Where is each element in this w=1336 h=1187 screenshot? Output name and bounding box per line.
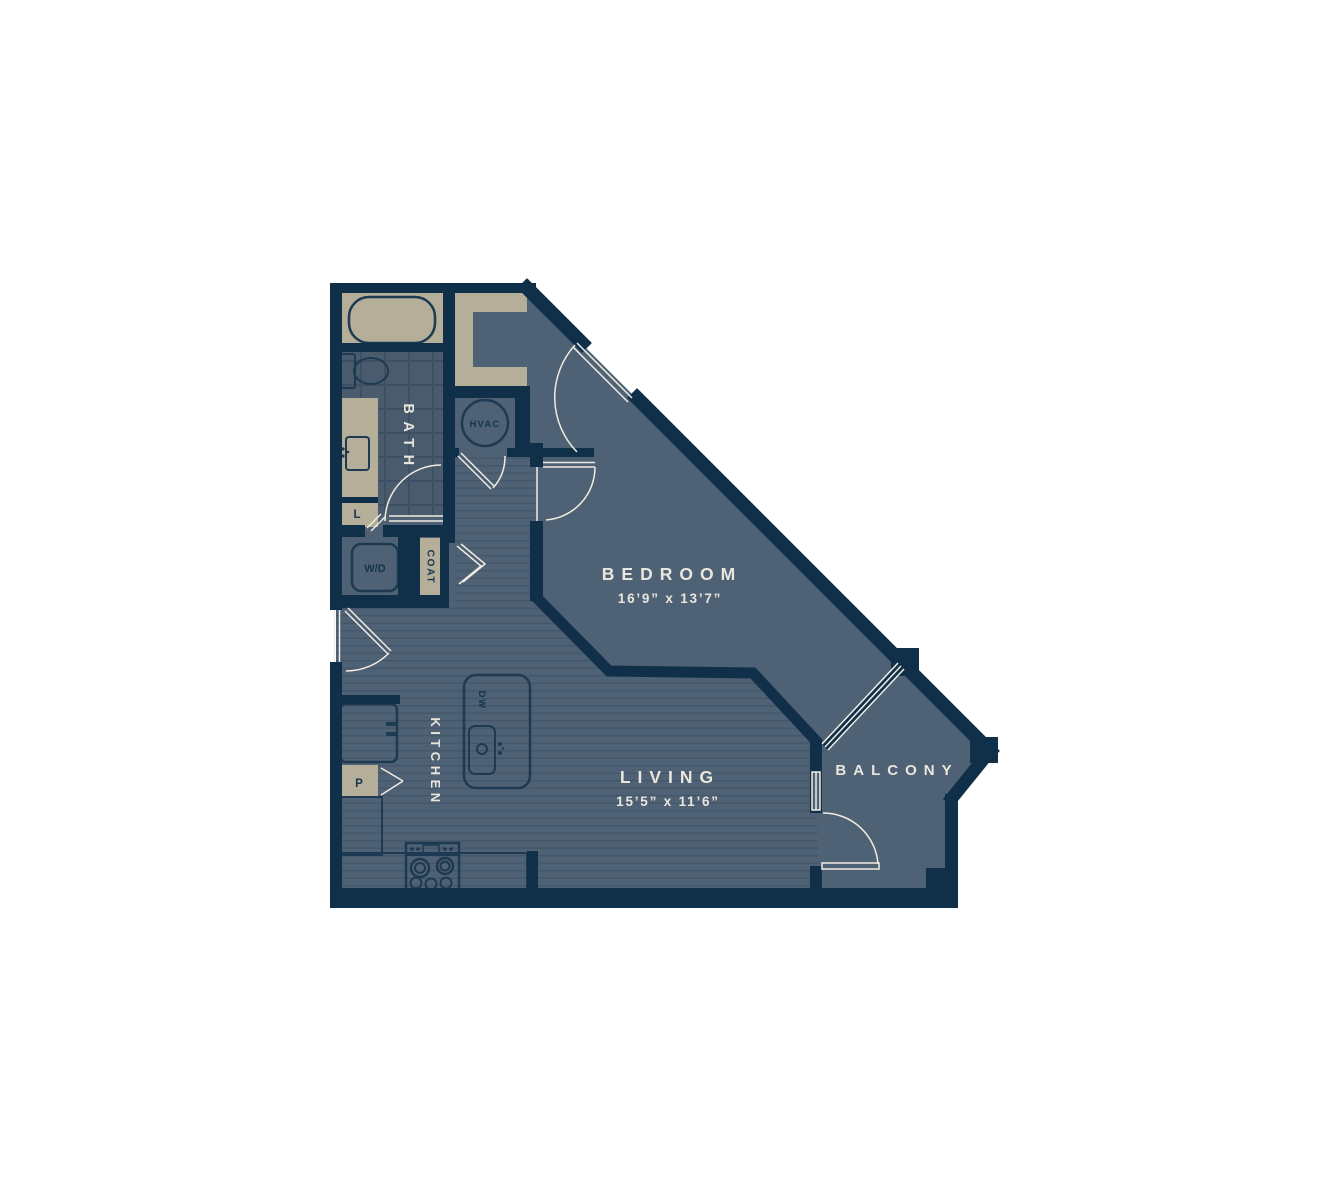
laundry-bottom-wall: [330, 595, 449, 608]
exterior-wall-top: [330, 283, 536, 293]
faucet-dot: [347, 451, 350, 454]
hall-top-wall-b: [507, 448, 594, 457]
island-faucet-dot: [502, 747, 505, 750]
island-faucet-dot: [498, 751, 502, 755]
living-dimensions: 15’5” x 11’6”: [616, 794, 720, 809]
living-label: LIVING: [620, 767, 720, 787]
kitchen-label: KITCHEN: [428, 717, 443, 806]
balcony-wall-lower: [810, 866, 822, 890]
island-faucet-dot: [498, 742, 502, 746]
pantry-label: P: [355, 778, 363, 790]
linen-wall-b: [383, 525, 455, 537]
exterior-wall-left-upper: [330, 283, 342, 610]
stove-knob: [416, 847, 420, 851]
bath-vanity: [338, 398, 378, 527]
hvac-label: HVAC: [469, 419, 500, 430]
stove-knob: [443, 847, 447, 851]
floor-plan-canvas: BEDROOM 16’9” x 13’7” LIVING 15’5” x 11’…: [0, 0, 1336, 1187]
dishwasher-label: DW: [476, 691, 487, 710]
washer-dryer-label: W/D: [364, 563, 385, 575]
bedroom-wall-upper: [530, 443, 543, 467]
floor-plan-page: BEDROOM 16’9” x 13’7” LIVING 15’5” x 11’…: [0, 0, 1336, 1187]
fridge-handle: [386, 732, 396, 736]
bath-closet-wall: [443, 283, 455, 543]
fridge-wall-stub: [338, 695, 400, 704]
stove-knob: [410, 847, 414, 851]
tub-wall: [338, 343, 443, 352]
balcony-label: BALCONY: [835, 762, 958, 779]
exterior-wall-bottom: [330, 888, 958, 908]
hvac-right-wall: [515, 388, 530, 457]
coat-front-wall: [440, 537, 449, 597]
linen-label: L: [353, 509, 360, 521]
vanity-linen-divider: [338, 497, 378, 503]
wd-coat-divider: [398, 537, 420, 597]
stove-knob: [449, 847, 453, 851]
counter-end-wall: [527, 851, 538, 890]
hall-top-wall-a: [443, 448, 459, 457]
bedroom-label: BEDROOM: [602, 564, 742, 584]
coat-label: COAT: [425, 550, 436, 585]
fridge-handle: [386, 722, 396, 726]
balcony-step-notch: [926, 868, 958, 892]
bedroom-wall-lower: [530, 521, 543, 601]
bedroom-dimensions: 16’9” x 13’7”: [618, 591, 722, 606]
balcony-wall-upper: [810, 740, 822, 769]
linen-wall-a: [330, 525, 365, 537]
bath-label: BATH: [400, 403, 416, 472]
